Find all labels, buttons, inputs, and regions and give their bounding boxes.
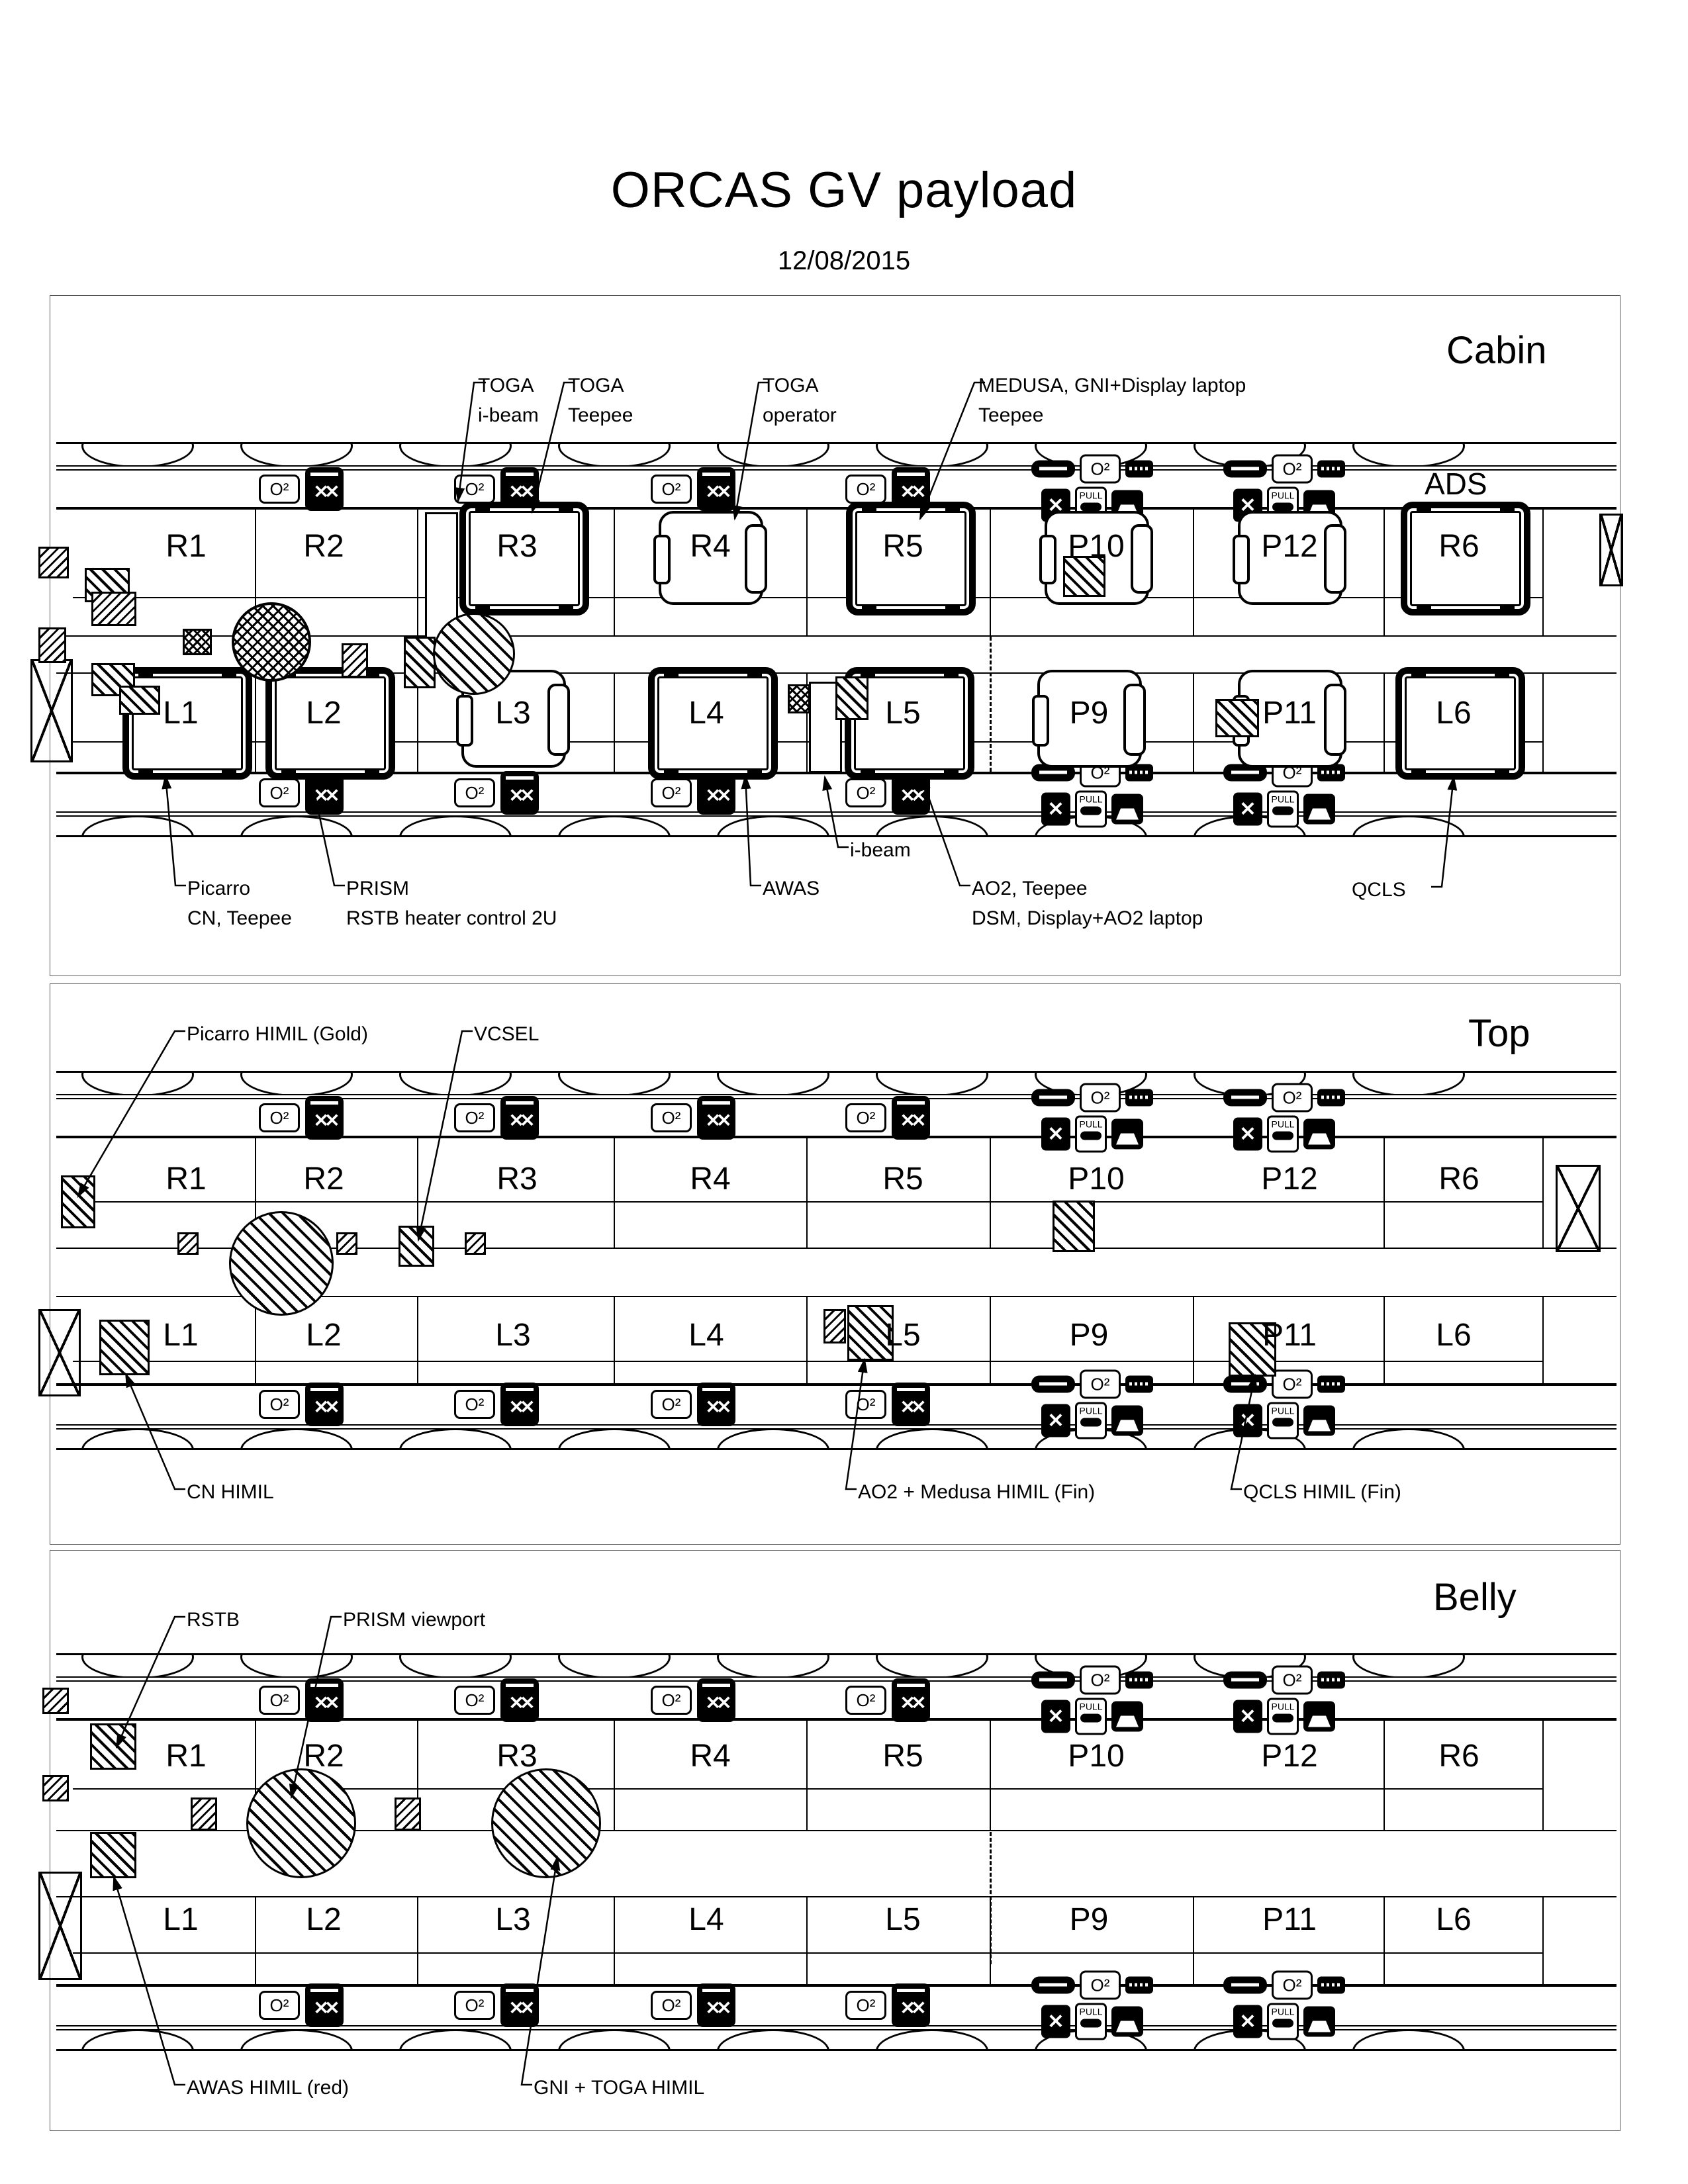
- seat-icon: [305, 1383, 344, 1426]
- window-arc: [717, 2030, 829, 2049]
- seat-icon: [892, 1678, 930, 1722]
- exit-icon-cluster: O²✕PULL: [1223, 1971, 1345, 2040]
- bay-separator: [1193, 1896, 1194, 1984]
- position-label: R1: [165, 528, 206, 565]
- window-arc: [876, 1655, 988, 1676]
- pull-handle-icon: PULL: [1075, 2003, 1107, 2040]
- pull-handle-icon: PULL: [1267, 791, 1299, 828]
- position-label: P12: [1261, 528, 1317, 565]
- hatched-area: [336, 1232, 357, 1255]
- exit-icon-cluster: O²✕PULL: [1031, 1971, 1153, 2040]
- bay-separator: [1542, 1296, 1544, 1385]
- exit-icon-cluster: O²✕PULL: [1223, 1666, 1345, 1735]
- bay-separator: [1383, 1721, 1385, 1830]
- window-arc: [81, 2030, 194, 2049]
- service-band: O²O²O²O²O²✕PULLO²✕PULL: [56, 1682, 1617, 1718]
- position-label: L4: [688, 1317, 724, 1353]
- window-band: [56, 2030, 1617, 2049]
- window-arc: [240, 2030, 353, 2049]
- seat-icon: [500, 1983, 539, 2027]
- exit-icon-cluster: O²✕PULL: [1031, 1370, 1153, 1439]
- position-label: L6: [1436, 1901, 1471, 1938]
- row-midline: [73, 1361, 1542, 1362]
- window-arc: [1352, 2030, 1465, 2049]
- fuselage-line: [56, 1676, 1617, 1678]
- position-label: R6: [1438, 1161, 1479, 1197]
- fuselage-line: [56, 1094, 1617, 1095]
- oxygen-panel-icon: O²: [845, 1390, 886, 1419]
- bay-separator: [1383, 1138, 1385, 1248]
- hatched-area: [823, 1309, 846, 1343]
- hatched-area: [177, 1232, 199, 1255]
- window-arc: [717, 444, 829, 465]
- oxygen-panel-icon: O²: [651, 475, 692, 504]
- cabin-view-label: Cabin: [1446, 328, 1547, 373]
- service-icon-cluster: O²: [259, 1983, 344, 2027]
- belted-seat-icon: ✕: [1041, 1404, 1070, 1437]
- window-band: [56, 1655, 1617, 1676]
- oxygen-panel-icon: O²: [1272, 455, 1313, 484]
- seat-icon: [500, 1383, 539, 1426]
- seat-icon: [500, 1678, 539, 1722]
- window-arc: [876, 444, 988, 465]
- hatched-area: [99, 1320, 150, 1375]
- bay-separator: [417, 510, 418, 635]
- pull-handle-icon: PULL: [1075, 1116, 1107, 1153]
- position-label: L1: [163, 1317, 198, 1353]
- pull-handle-icon: PULL: [1267, 1402, 1299, 1439]
- window-band: [56, 1073, 1617, 1094]
- belted-seat-icon: ✕: [1041, 793, 1070, 826]
- position-label: L3: [495, 1901, 530, 1938]
- top-view-label: Top: [1468, 1011, 1530, 1056]
- exit-hatch-icon: [1303, 1119, 1335, 1150]
- position-label: L4: [688, 1901, 724, 1938]
- window-arc: [81, 1430, 194, 1448]
- seat-icon: [697, 1383, 735, 1426]
- bay-separator: [1193, 672, 1194, 772]
- row-line: [56, 1896, 1617, 1897]
- exit-icon-cluster: O²✕PULL: [1031, 1666, 1153, 1735]
- window-arc: [240, 817, 353, 835]
- position-label: P12: [1261, 1738, 1317, 1774]
- fuselage-line: [56, 1448, 1617, 1450]
- window-band: [56, 444, 1617, 465]
- exit-hatch-icon: [1303, 2007, 1335, 2037]
- crosshatched-area: [788, 684, 810, 713]
- x-brace: [38, 1309, 81, 1396]
- pull-handle-icon: PULL: [1267, 1698, 1299, 1735]
- pull-handle-icon: PULL: [1267, 2003, 1299, 2040]
- crosshatched-circle: [232, 602, 311, 682]
- exit-icon-cluster: O²✕PULL: [1223, 758, 1345, 828]
- exit-hatch-icon: [1111, 794, 1143, 825]
- pull-handle-icon: PULL: [1267, 1116, 1299, 1153]
- oxygen-panel-icon: O²: [1272, 1666, 1313, 1695]
- bay-separator: [417, 1296, 418, 1385]
- hatched-area: [404, 637, 436, 688]
- window-arc: [558, 1430, 671, 1448]
- position-label: R1: [165, 1161, 206, 1197]
- position-label: P10: [1068, 1161, 1124, 1197]
- bay-separator: [806, 1296, 808, 1385]
- window-arc: [717, 1073, 829, 1094]
- position-label: L2: [306, 695, 341, 731]
- window-arc: [876, 1430, 988, 1448]
- exit-hatch-icon: [1303, 1702, 1335, 1732]
- bay-separator: [614, 1896, 615, 1984]
- bay-separator: [1383, 1896, 1385, 1984]
- service-icon-cluster: O²: [651, 1678, 735, 1722]
- exit-icon-cluster: O²✕PULL: [1031, 758, 1153, 828]
- position-label: P10: [1068, 528, 1124, 565]
- position-label: L3: [495, 695, 530, 731]
- bay-separator: [806, 1721, 808, 1830]
- window-arc: [558, 444, 671, 465]
- hatched-area: [42, 1775, 69, 1801]
- seat-icon: [892, 1096, 930, 1140]
- bay-separator: [990, 1721, 991, 1830]
- position-label: L5: [885, 695, 920, 731]
- window-arc: [1352, 1073, 1465, 1094]
- annotation-toga-teepee: TOGA Teepee: [568, 371, 633, 430]
- bay-separator: [990, 510, 991, 635]
- bay-separator: [1383, 510, 1385, 635]
- service-icon-cluster: O²: [454, 1983, 539, 2027]
- fuselage-line: [56, 2049, 1617, 2051]
- position-label: P11: [1262, 695, 1317, 731]
- position-label: R1: [165, 1738, 206, 1774]
- annotation-rstb: RSTB: [187, 1605, 240, 1635]
- vent-icon: [1317, 1977, 1345, 1994]
- service-band: O²O²O²O²O²✕PULLO²✕PULL: [56, 1987, 1617, 2023]
- position-label: R2: [303, 528, 344, 565]
- window-arc: [81, 1073, 194, 1094]
- annotation-awas: AWAS: [763, 874, 820, 903]
- bay-separator: [614, 672, 615, 772]
- belted-seat-icon: ✕: [1041, 1118, 1070, 1151]
- annotation-picarro-himil: Picarro HIMIL (Gold): [187, 1019, 368, 1049]
- position-label: P9: [1070, 1901, 1109, 1938]
- bay-separator: [417, 1896, 418, 1984]
- seat-icon: [500, 771, 539, 815]
- annotation-prism-viewport: PRISM viewport: [343, 1605, 485, 1635]
- oxygen-panel-icon: O²: [259, 1686, 300, 1715]
- oxygen-panel-icon: O²: [845, 475, 886, 504]
- annotation-toga-ibeam: TOGA i-beam: [478, 371, 539, 430]
- service-icon-cluster: O²: [454, 1678, 539, 1722]
- service-icon-cluster: O²: [259, 1678, 344, 1722]
- flashlight-icon: [1031, 1672, 1075, 1689]
- x-brace: [1599, 514, 1623, 586]
- position-label: R5: [882, 1738, 923, 1774]
- seat-icon: [697, 1678, 735, 1722]
- window-arc: [558, 2030, 671, 2049]
- fuselage-line: [56, 465, 1617, 467]
- position-label: P12: [1261, 1161, 1317, 1197]
- hatched-area: [90, 1723, 136, 1770]
- window-arc: [558, 817, 671, 835]
- service-icon-cluster: O²: [651, 1383, 735, 1426]
- crosshatched-area: [183, 629, 212, 655]
- window-arc: [81, 817, 194, 835]
- window-arc: [558, 1073, 671, 1094]
- zone-divider-dashed: [990, 637, 992, 772]
- seat-icon: [697, 1983, 735, 2027]
- position-label: R4: [690, 1161, 730, 1197]
- position-label: R5: [882, 528, 923, 565]
- window-arc: [1352, 1655, 1465, 1676]
- belted-seat-icon: ✕: [1233, 1404, 1262, 1437]
- oxygen-panel-icon: O²: [454, 1991, 495, 2020]
- oxygen-panel-icon: O²: [845, 1103, 886, 1132]
- position-label: R2: [303, 1738, 344, 1774]
- hatched-area: [1215, 699, 1259, 737]
- bay-separator: [990, 1138, 991, 1248]
- flashlight-icon: [1223, 1089, 1267, 1107]
- pull-handle-icon: PULL: [1075, 791, 1107, 828]
- annotation-picarro: Picarro CN, Teepee: [187, 874, 292, 933]
- oxygen-panel-icon: O²: [259, 1390, 300, 1419]
- bay-separator: [806, 1896, 808, 1984]
- service-icon-cluster: O²: [845, 1383, 930, 1426]
- hatched-area: [1053, 1201, 1095, 1252]
- window-arc: [1352, 444, 1465, 465]
- position-label: P11: [1262, 1317, 1317, 1353]
- oxygen-panel-icon: O²: [1080, 1971, 1121, 2000]
- bay-separator: [614, 1138, 615, 1248]
- position-label: R5: [882, 1161, 923, 1197]
- vent-icon: [1317, 1376, 1345, 1393]
- x-brace: [30, 659, 73, 762]
- bay-separator: [255, 672, 256, 772]
- oxygen-panel-icon: O²: [651, 1103, 692, 1132]
- bay-separator: [990, 1296, 991, 1385]
- hatched-area: [38, 547, 69, 578]
- vent-icon: [1125, 1089, 1153, 1107]
- exit-icon-cluster: O²✕PULL: [1223, 1370, 1345, 1439]
- oxygen-panel-icon: O²: [651, 778, 692, 807]
- bay-separator: [1193, 510, 1194, 635]
- position-label: R3: [496, 1738, 537, 1774]
- oxygen-panel-icon: O²: [845, 1686, 886, 1715]
- hatched-circle: [229, 1211, 334, 1316]
- vent-icon: [1317, 1672, 1345, 1689]
- vent-icon: [1317, 1089, 1345, 1107]
- hatched-area: [119, 686, 160, 715]
- window-arc: [240, 1073, 353, 1094]
- hatched-area: [61, 1175, 95, 1228]
- window-arc: [717, 817, 829, 835]
- hatched-area: [465, 1232, 486, 1255]
- window-arc: [1352, 817, 1465, 835]
- oxygen-panel-icon: O²: [845, 778, 886, 807]
- oxygen-panel-icon: O²: [1272, 1370, 1313, 1399]
- position-label: R2: [303, 1161, 344, 1197]
- oxygen-panel-icon: O²: [845, 1991, 886, 2020]
- flashlight-icon: [1223, 1977, 1267, 1994]
- bay-separator: [614, 1296, 615, 1385]
- service-icon-cluster: O²: [454, 1096, 539, 1140]
- oxygen-panel-icon: O²: [259, 1991, 300, 2020]
- exit-hatch-icon: [1303, 1406, 1335, 1436]
- belted-seat-icon: ✕: [1233, 793, 1262, 826]
- position-label: L5: [885, 1901, 920, 1938]
- annotation-ao2-medusa-himil: AO2 + Medusa HIMIL (Fin): [858, 1477, 1095, 1507]
- flashlight-icon: [1031, 1089, 1075, 1107]
- seat-icon: [697, 467, 735, 511]
- window-arc: [81, 444, 194, 465]
- exit-hatch-icon: [1111, 1119, 1143, 1150]
- pull-handle-icon: PULL: [1075, 1402, 1107, 1439]
- window-arc: [1352, 1430, 1465, 1448]
- annotation-ibeam: i-beam: [850, 835, 911, 865]
- service-icon-cluster: O²: [845, 1096, 930, 1140]
- seat-icon: [697, 1096, 735, 1140]
- hatched-circle: [433, 613, 515, 695]
- window-arc: [876, 817, 988, 835]
- seat-icon: [305, 1678, 344, 1722]
- position-label: L2: [306, 1901, 341, 1938]
- bay-separator: [255, 1896, 256, 1984]
- service-icon-cluster: O²: [259, 1096, 344, 1140]
- hatched-area: [191, 1797, 217, 1831]
- oxygen-panel-icon: O²: [259, 475, 300, 504]
- window-arc: [399, 444, 512, 465]
- window-arc: [876, 1073, 988, 1094]
- oxygen-panel-icon: O²: [651, 1390, 692, 1419]
- window-arc: [81, 1655, 194, 1676]
- position-label: R6: [1438, 528, 1479, 565]
- oxygen-panel-icon: O²: [1080, 1370, 1121, 1399]
- vent-icon: [1317, 461, 1345, 478]
- belted-seat-icon: ✕: [1041, 1700, 1070, 1733]
- oxygen-panel-icon: O²: [454, 1103, 495, 1132]
- window-arc: [399, 1430, 512, 1448]
- exit-icon-cluster: O²✕PULL: [1031, 1083, 1153, 1153]
- exit-hatch-icon: [1303, 794, 1335, 825]
- oxygen-panel-icon: O²: [454, 475, 495, 504]
- bay-separator: [614, 1721, 615, 1830]
- vent-icon: [1125, 1977, 1153, 1994]
- seat-icon: [500, 1096, 539, 1140]
- window-arc: [399, 1655, 512, 1676]
- position-label: R6: [1438, 1738, 1479, 1774]
- belted-seat-icon: ✕: [1041, 2005, 1070, 2038]
- oxygen-panel-icon: O²: [651, 1686, 692, 1715]
- hatched-area: [395, 1797, 421, 1831]
- exit-icon-cluster: O²✕PULL: [1223, 1083, 1345, 1153]
- annotation-qcls-himil: QCLS HIMIL (Fin): [1243, 1477, 1401, 1507]
- row-midline: [73, 1952, 1542, 1954]
- window-arc: [717, 1655, 829, 1676]
- annotation-awas-himil: AWAS HIMIL (red): [187, 2073, 349, 2103]
- oxygen-panel-icon: O²: [651, 1991, 692, 2020]
- service-icon-cluster: O²: [454, 771, 539, 815]
- annotation-gni-toga-himil: GNI + TOGA HIMIL: [534, 2073, 704, 2103]
- vent-icon: [1125, 1376, 1153, 1393]
- window-arc: [240, 1655, 353, 1676]
- position-label: L5: [885, 1317, 920, 1353]
- bay-separator: [1193, 1296, 1194, 1385]
- hatched-area: [42, 1688, 69, 1714]
- bay-separator: [806, 1138, 808, 1248]
- bay-separator: [1383, 1296, 1385, 1385]
- service-icon-cluster: O²: [845, 1983, 930, 2027]
- position-label: P10: [1068, 1738, 1124, 1774]
- oxygen-panel-icon: O²: [1272, 1083, 1313, 1113]
- window-band: [56, 1430, 1617, 1448]
- window-arc: [399, 1073, 512, 1094]
- viewport-circle: [491, 1768, 601, 1878]
- position-label: R3: [496, 528, 537, 565]
- position-label: L1: [163, 695, 198, 731]
- viewport-circle: [246, 1768, 356, 1878]
- flashlight-icon: [1031, 1977, 1075, 1994]
- window-arc: [876, 2030, 988, 2049]
- x-brace: [38, 1872, 82, 1980]
- hatched-area: [91, 592, 136, 626]
- position-label: P9: [1070, 695, 1109, 731]
- flashlight-icon: [1223, 1672, 1267, 1689]
- bay-separator: [1383, 672, 1385, 772]
- window-arc: [240, 1430, 353, 1448]
- hatched-area: [38, 627, 66, 663]
- bay-separator: [1542, 510, 1544, 635]
- bay-separator: [806, 510, 808, 635]
- service-icon-cluster: O²: [259, 1383, 344, 1426]
- hatched-area: [399, 1226, 434, 1267]
- oxygen-panel-icon: O²: [259, 1103, 300, 1132]
- exit-hatch-icon: [1111, 1702, 1143, 1732]
- flashlight-icon: [1031, 1376, 1075, 1393]
- position-label: L2: [306, 1317, 341, 1353]
- annotation-prism: PRISM RSTB heater control 2U: [346, 874, 557, 933]
- exit-hatch-icon: [1111, 2007, 1143, 2037]
- window-arc: [558, 1655, 671, 1676]
- bay-separator: [1542, 672, 1544, 772]
- service-icon-cluster: O²: [651, 1983, 735, 2027]
- bay-separator: [614, 510, 615, 635]
- row-midline: [73, 1201, 1542, 1203]
- oxygen-panel-icon: O²: [454, 1686, 495, 1715]
- flashlight-icon: [1223, 461, 1267, 478]
- position-label: P9: [1070, 1317, 1109, 1353]
- service-icon-cluster: O²: [651, 1096, 735, 1140]
- belted-seat-icon: ✕: [1233, 1700, 1262, 1733]
- seat-icon: [305, 467, 344, 511]
- service-icon-cluster: O²: [651, 467, 735, 511]
- service-band: O²O²O²O²O²✕PULLO²✕PULL: [56, 1386, 1617, 1422]
- oxygen-panel-icon: O²: [1080, 1666, 1121, 1695]
- bay-separator: [1542, 1721, 1544, 1830]
- belly-view-label: Belly: [1433, 1575, 1517, 1619]
- service-icon-cluster: O²: [454, 1383, 539, 1426]
- annotation-qcls: QCLS: [1352, 875, 1406, 905]
- annotation-vcsel: VCSEL: [474, 1019, 539, 1049]
- window-arc: [399, 817, 512, 835]
- oxygen-panel-icon: O²: [454, 778, 495, 807]
- annotation-medusa: MEDUSA, GNI+Display laptop Teepee: [978, 371, 1246, 430]
- oxygen-panel-icon: O²: [1080, 1083, 1121, 1113]
- position-label: L6: [1436, 1317, 1471, 1353]
- vent-icon: [1125, 461, 1153, 478]
- bay-separator: [1542, 1138, 1544, 1248]
- position-label: L4: [688, 695, 724, 731]
- seat-icon: [892, 1383, 930, 1426]
- service-band: O²O²O²O²O²✕PULLO²✕PULL: [56, 1099, 1617, 1136]
- position-label: R4: [690, 1738, 730, 1774]
